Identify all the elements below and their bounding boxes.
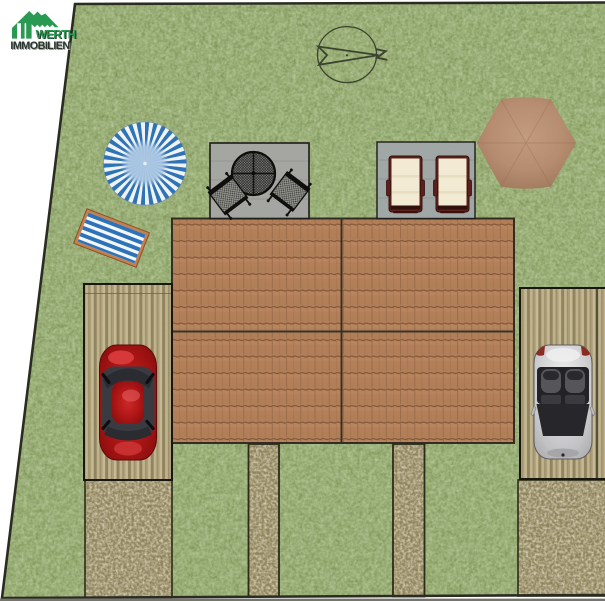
svg-text:IMMOBILIEN: IMMOBILIEN bbox=[10, 40, 70, 52]
